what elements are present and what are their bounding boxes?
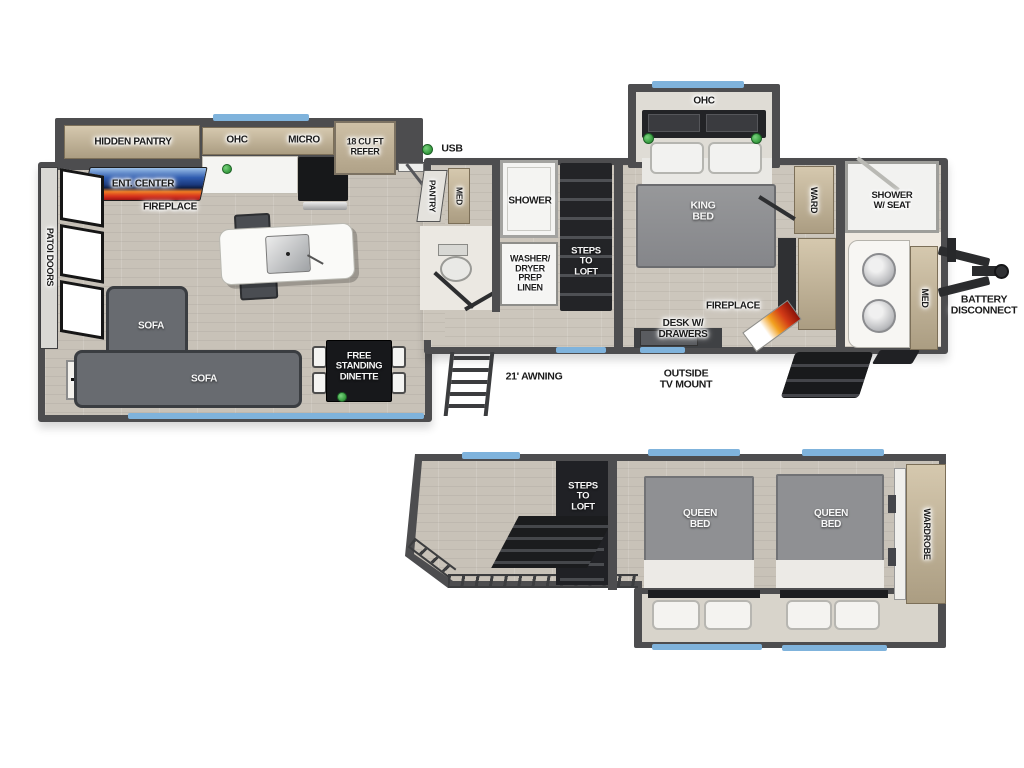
- queen-pillow: [704, 600, 752, 630]
- window-marker: [652, 644, 762, 650]
- bumper-step: [872, 350, 920, 364]
- ent-center-label: ENT. CENTER: [112, 180, 174, 191]
- light-indicator-dot: [643, 133, 654, 144]
- kitchen-island: [219, 223, 356, 286]
- queen-bed-b-foot: [776, 560, 884, 588]
- queen-pillow: [652, 600, 700, 630]
- washer-label: WASHER/ DRYER PREP LINEN: [510, 255, 550, 294]
- king-pillow: [708, 142, 762, 174]
- dinette-chair: [312, 346, 327, 368]
- patio-door-panel: [60, 224, 104, 284]
- hitch-coupler: [994, 264, 1009, 279]
- bath-wall: [492, 162, 500, 312]
- headboard-bar: [648, 590, 760, 598]
- slide-topper-king: [652, 81, 744, 88]
- bedroom-closet: [798, 238, 836, 330]
- king-pillow: [650, 142, 704, 174]
- patio-door-panel: [60, 280, 104, 340]
- sofa-a-label: SOFA: [138, 322, 164, 333]
- patio-doors-label: PATOI DOORS: [44, 228, 54, 286]
- window-marker: [782, 645, 887, 651]
- kitchen-counter: [202, 156, 298, 194]
- vanity-sink: [862, 253, 896, 287]
- queen-bed-a-label: QUEEN BED: [683, 509, 717, 531]
- bedroom-overhead-cabinet: [642, 110, 766, 138]
- light-indicator-dot: [337, 392, 347, 402]
- sofa-b-label: SOFA: [191, 375, 217, 386]
- battery-disconnect-label: BATTERY DISCONNECT: [951, 295, 1017, 318]
- entry-steps: [781, 352, 874, 398]
- tongue-jack: [947, 238, 956, 262]
- light-indicator-dot: [751, 133, 762, 144]
- slide-topper-loft: [648, 449, 740, 456]
- bedroom-wall: [614, 160, 623, 352]
- shower-w-seat-label: SHOWER W/ SEAT: [872, 191, 913, 212]
- sofa-long: [74, 350, 302, 408]
- dinette-chair: [391, 346, 406, 368]
- toilet-tank: [438, 244, 468, 256]
- light-indicator-dot: [222, 164, 232, 174]
- queen-pillow: [786, 600, 832, 630]
- king-bed-label: KING BED: [690, 201, 715, 224]
- med-bath-label: MED: [919, 288, 929, 307]
- window-marker: [640, 347, 685, 353]
- oven-handle: [303, 202, 347, 210]
- med-hall-label: MED: [454, 187, 463, 205]
- steps-to-loft-main: [560, 163, 612, 311]
- patio-door-panels: [60, 168, 106, 350]
- wardrobe-label: WARDROBE: [921, 508, 931, 559]
- ward-label: WARD: [808, 187, 818, 213]
- ladder-icon: [444, 352, 495, 416]
- headboard-bar: [780, 590, 888, 598]
- fireplace-front-label: FIREPLACE: [706, 302, 760, 313]
- usb-port-dot: [422, 144, 433, 155]
- micro-label: MICRO: [288, 136, 320, 147]
- floorplan-canvas: HIDDEN PANTRY OHC MICRO 18 CU FT REFER E…: [0, 0, 1024, 768]
- usb-label: USB: [441, 143, 462, 154]
- patio-door-panel: [60, 168, 104, 228]
- ohc-kitchen-label: OHC: [226, 136, 247, 147]
- king-bed-blanket: [636, 184, 776, 268]
- dinette-chair: [312, 372, 327, 394]
- slide-topper-loft: [802, 449, 884, 456]
- queen-bed-a-foot: [644, 560, 754, 588]
- fireplace-rear-label: FIREPLACE: [143, 203, 197, 214]
- refer-label: 18 CU FT REFER: [347, 137, 384, 156]
- loft-divider-wall: [608, 458, 617, 590]
- awning-label: 21' AWNING: [506, 371, 563, 382]
- front-bath-wall: [836, 158, 845, 354]
- loft-door-gap: [894, 468, 906, 600]
- window-marker: [128, 413, 424, 419]
- ohc-bedroom-label: OHC: [693, 97, 714, 108]
- door-hinge: [888, 495, 896, 513]
- door-hinge: [888, 548, 896, 566]
- loft-steps-label: STEPS TO LOFT: [568, 482, 598, 513]
- dinette-label: FREE STANDING DINETTE: [336, 352, 383, 383]
- hidden-pantry-label: HIDDEN PANTRY: [94, 138, 171, 149]
- pantry-label: PANTRY: [427, 180, 436, 212]
- shower-label: SHOWER: [508, 197, 551, 208]
- queen-bed-b-label: QUEEN BED: [814, 509, 848, 531]
- slide-topper-loft: [462, 452, 520, 459]
- queen-pillow: [834, 600, 880, 630]
- window-marker: [556, 347, 606, 353]
- desk-label: DESK W/ DRAWERS: [658, 319, 707, 341]
- dinette-chair: [391, 372, 406, 394]
- slide-topper-kitchen: [213, 114, 309, 121]
- vanity-sink: [862, 299, 896, 333]
- tv-mount-label: OUTSIDE TV MOUNT: [660, 369, 712, 392]
- steps-main-label: STEPS TO LOFT: [571, 247, 601, 278]
